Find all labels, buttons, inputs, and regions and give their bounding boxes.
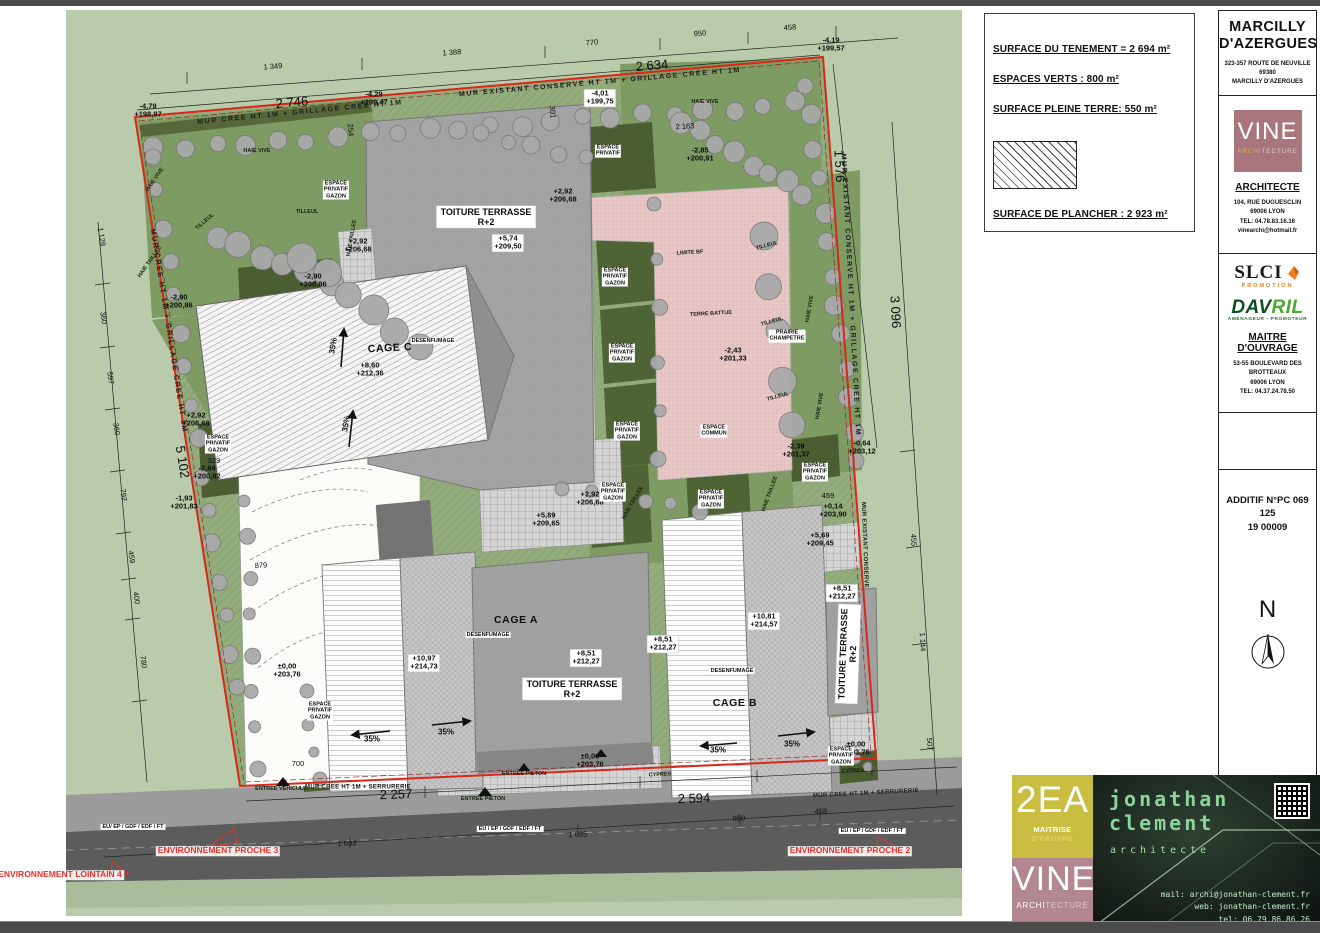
legend-tenement: SURFACE DU TENEMENT = 2 694 m² [993, 44, 1170, 55]
garage-ramp [376, 500, 434, 565]
building-cage-b [662, 512, 752, 798]
slci-promotion-logo: SLCI PROMOTION [1219, 262, 1316, 289]
roof-west-1 [322, 558, 408, 792]
project-city-line1: MARCILLY [1219, 19, 1316, 36]
titleblock-architect: VINE ARCHITECTURE ARCHITECTE 104, RUE DU… [1219, 96, 1316, 254]
roof-west-2 [400, 552, 483, 790]
architect-info: 104, RUE DUGUESCLIN 69006 LYON TEL: 04.7… [1219, 199, 1316, 236]
architect-role: architecte [1110, 845, 1210, 856]
titleblock-project: MARCILLY D'AZERGUES 323-357 ROUTE DE NEU… [1219, 11, 1316, 96]
top-edge-bar [0, 0, 1320, 6]
permit-number: ADDITIF N°PC 069 125 19 00009 [1219, 494, 1316, 534]
vine-logo-name: VINE [1234, 110, 1302, 146]
building-cage-a [472, 552, 652, 772]
architect-heading: ARCHITECTE [1219, 182, 1316, 193]
legend-espaces-verts: ESPACES VERTS : 800 m² [993, 74, 1119, 85]
legend-plancher: SURFACE DE PLANCHER : 2 923 m² [993, 209, 1168, 220]
titleblock: MARCILLY D'AZERGUES 323-357 ROUTE DE NEU… [1218, 10, 1317, 789]
building-toiture-terrasse-east [826, 588, 878, 716]
qr-code [1274, 783, 1310, 819]
bottom-edge-bar [0, 921, 1320, 933]
2ea-logo: 2EA MAITRISE D'OEUVRE [1012, 775, 1093, 858]
north-label: N [1219, 596, 1316, 624]
jonathan-clement-card: jonathanclement architecte mail: archi@j… [1093, 775, 1320, 933]
titleblock-permit: ADDITIF N°PC 069 125 19 00009 N [1219, 470, 1316, 785]
slci-cube-icon [1285, 265, 1301, 281]
architect-name: jonathanclement [1109, 787, 1229, 835]
owner-info: 53-55 BOULEVARD DES BROTTEAUX 69006 LYON… [1219, 360, 1316, 397]
contact-web: web: jonathan-clement.fr [1161, 901, 1310, 914]
davril-logo: DAVRIL AMÉNAGEUR - PROMOTEUR [1219, 297, 1316, 322]
vine-logo-sub: ARCHITECTURE [1234, 148, 1302, 155]
vine-architecture-logo: VINE ARCHITECTURE [1234, 110, 1302, 172]
site-plan-sheet: 1 3491 3887709504582 7462 6342 163301254… [0, 0, 1320, 933]
roof-east-2 [742, 505, 832, 795]
project-city-line2: D'AZERGUES [1219, 36, 1316, 53]
legend-pleine-terre: SURFACE PLEINE TERRE: 550 m² [993, 104, 1157, 115]
contact-mail: mail: archi@jonathan-clement.fr [1161, 889, 1310, 902]
north-compass-icon [1246, 628, 1290, 672]
legend-box: SURFACE DU TENEMENT = 2 694 m² ESPACES V… [984, 13, 1195, 232]
owner-heading: MAITRE D'OUVRAGE [1219, 332, 1316, 354]
pleine-terre-hatch-swatch [993, 141, 1077, 189]
titleblock-empty-section [1219, 413, 1316, 470]
titleblock-owner: SLCI PROMOTION DAVRIL AMÉNAGEUR - PROMOT… [1219, 254, 1316, 413]
project-address: 323-357 ROUTE DE NEUVILLE 69380 MARCILLY… [1219, 60, 1316, 88]
